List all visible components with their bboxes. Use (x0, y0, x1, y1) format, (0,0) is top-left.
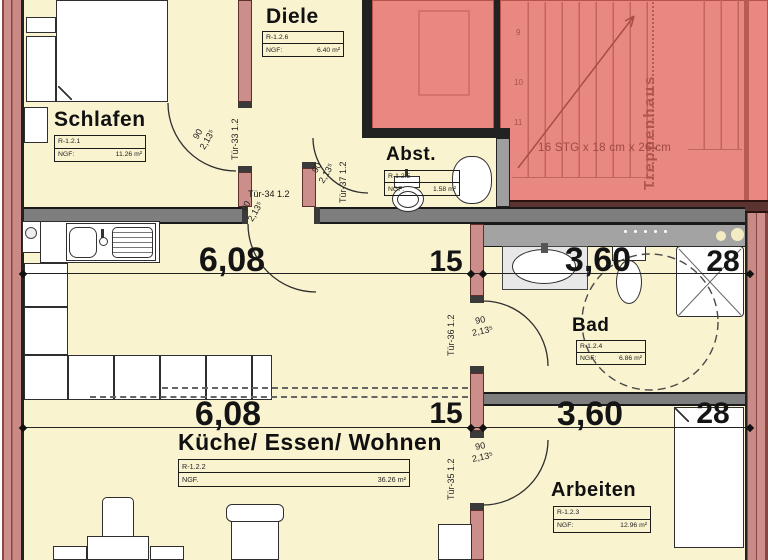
room-id: R-1.2.5 (388, 173, 410, 180)
room-area: 6.86 m² (619, 355, 642, 362)
room-stamp-arbeiten: R-1.2.3 NGF:12.96 m² (553, 506, 651, 533)
room-id: R-1.2.1 (58, 138, 80, 145)
dimension-value: 15 (424, 399, 468, 429)
room-label-kueche: Küche/ Essen/ Wohnen (178, 429, 442, 456)
room-stamp-bad: R-1.2.4 NGF:6.86 m² (576, 340, 646, 365)
room-id: R-1.2.6 (266, 34, 288, 41)
dimension-value: 28 (688, 399, 738, 429)
room-id: R-1.2.3 (557, 509, 579, 516)
door-label-t37: Tür-37 1.2 (338, 161, 348, 203)
ngf-label: NGF: (557, 522, 573, 529)
room-area: 12.96 m² (620, 522, 647, 529)
dimension-value: 6,08 (172, 243, 292, 277)
room-label-diele: Diele (266, 5, 319, 29)
ngf-label: NGF: (388, 186, 404, 193)
room-label-bad: Bad (572, 315, 609, 337)
room-stamp-abst: R-1.2.5 NGF:1.58 m² (384, 170, 460, 196)
ngf-label: NGF: (58, 151, 74, 158)
dimension-value: 15 (424, 247, 468, 277)
floor-plan: 9 10 11 Treppenhaus 16 STG x 18 cm x 26 … (0, 0, 768, 560)
room-area: 36.26 m² (378, 475, 406, 484)
dimension-value: 6,08 (168, 397, 288, 431)
room-label-arbeiten: Arbeiten (551, 479, 636, 502)
room-label-abst: Abst. (386, 144, 436, 166)
room-stamp-kueche: R-1.2.2 NGF.36.26 m² (178, 459, 410, 487)
stair-direction-line (518, 16, 634, 168)
room-area: 11.26 m² (116, 151, 142, 158)
dimension-value: 3,60 (540, 243, 656, 277)
dimension-value: 3,60 (532, 397, 648, 431)
room-area: 1.58 m² (433, 186, 456, 193)
room-id: R-1.2.4 (580, 343, 602, 350)
room-id: R-1.2.2 (182, 462, 206, 471)
room-area: 6.40 m² (317, 47, 340, 54)
room-label-schlafen: Schlafen (54, 108, 146, 132)
beam-dashed-line (162, 387, 468, 389)
ngf-label: NGF. (182, 475, 198, 484)
dimension-value: 28 (698, 247, 748, 277)
room-stamp-diele: R-1.2.6 NGF:6.40 m² (262, 31, 344, 57)
room-stamp-schlafen: R-1.2.1 NGF:11.26 m² (54, 135, 146, 162)
ngf-label: NGF: (266, 47, 282, 54)
door-label-t35: Tür-35 1.2 (446, 458, 456, 500)
ngf-label: NGF: (580, 355, 596, 362)
door-label-t36: Tür-36 1.2 (446, 314, 456, 356)
door-label-t33: Tür-33 1.2 (230, 118, 240, 160)
